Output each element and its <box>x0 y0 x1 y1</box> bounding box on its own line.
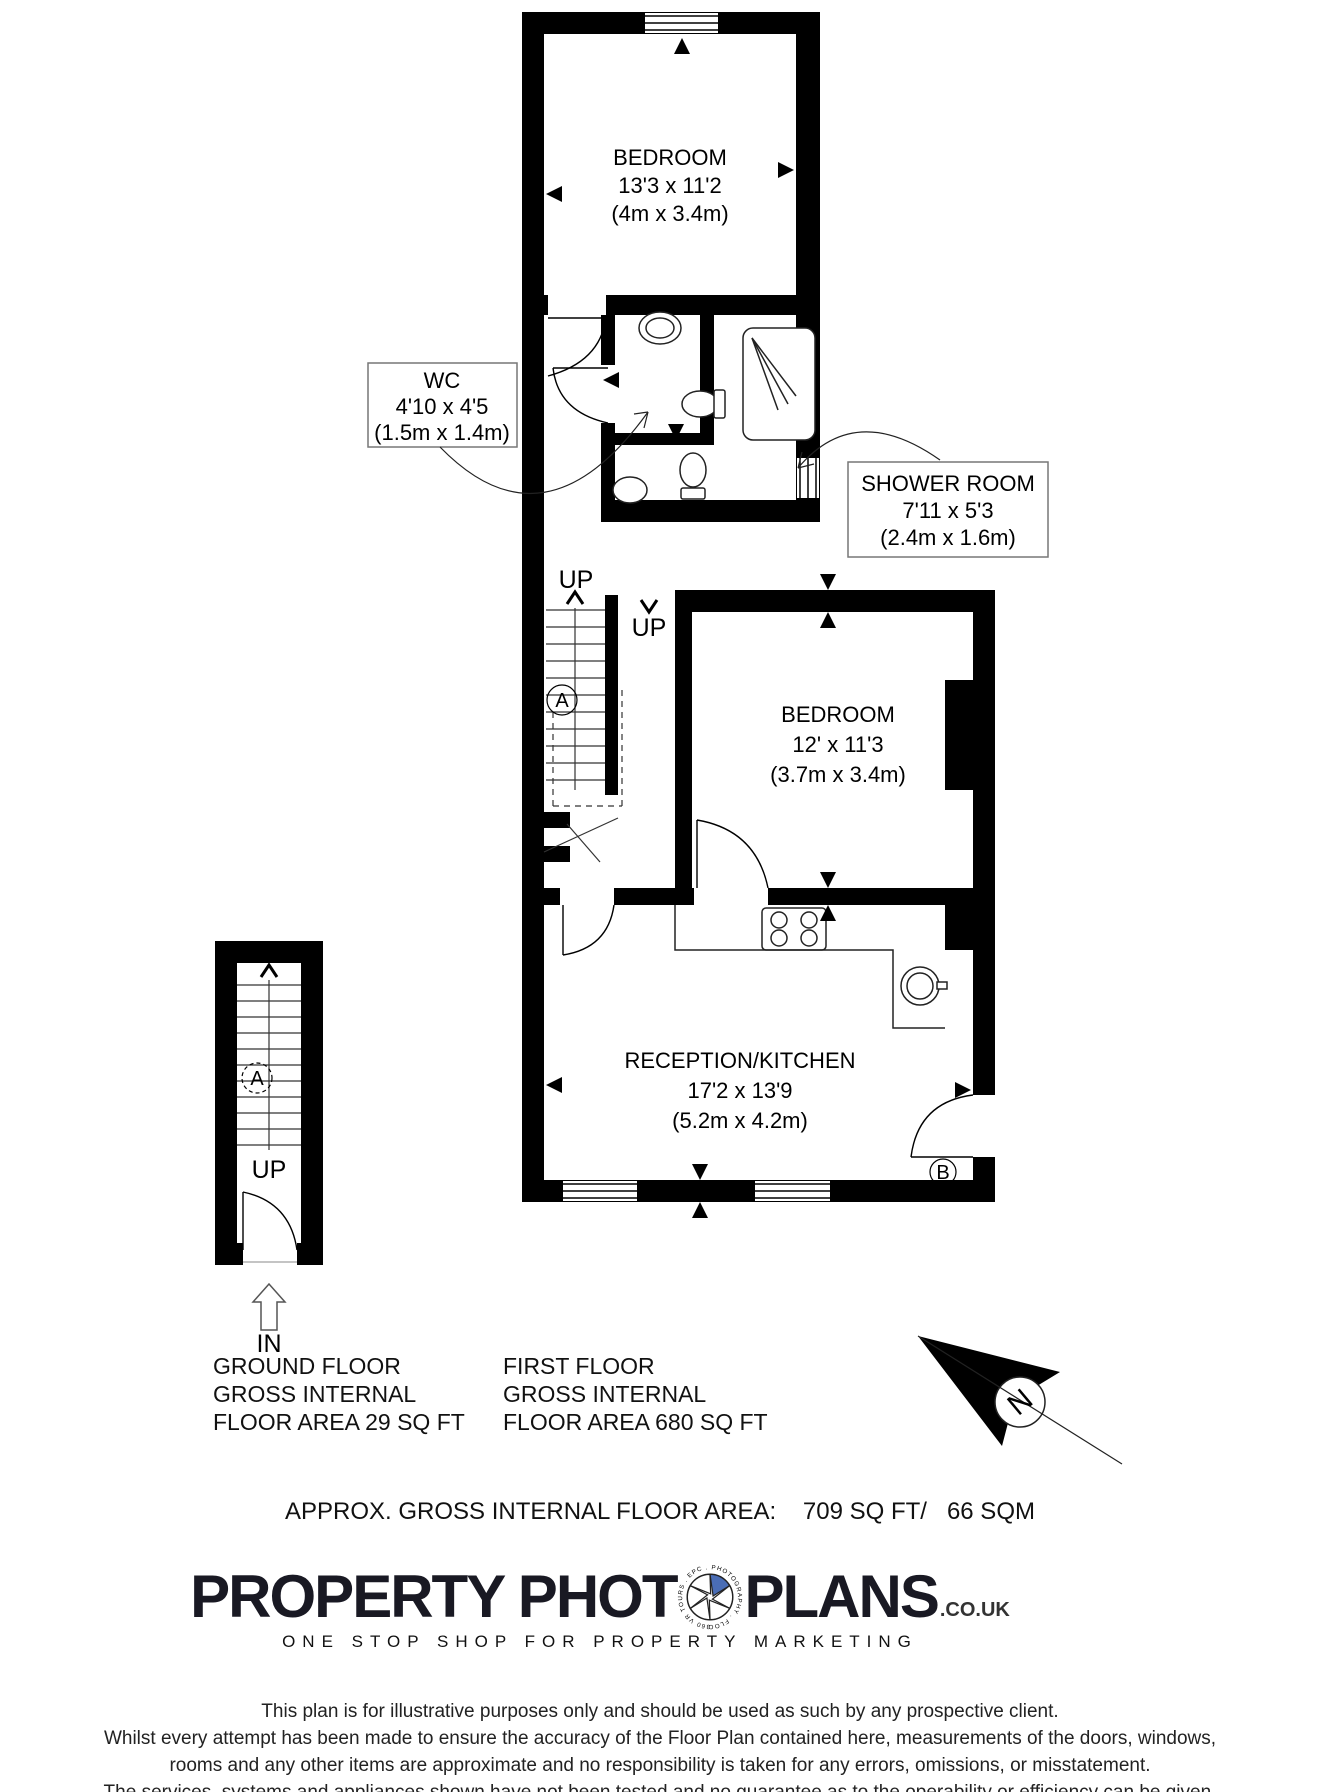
wall <box>675 590 995 612</box>
first-floor-caption: FIRST FLOOR GROSS INTERNAL FLOOR AREA 68… <box>503 1352 768 1436</box>
caption-line: FIRST FLOOR <box>503 1352 768 1380</box>
marker-icon <box>674 38 690 54</box>
first-floor-walls <box>522 12 995 1202</box>
kitchen-sink <box>901 967 947 1005</box>
wall <box>700 315 714 445</box>
marker-icon <box>778 162 794 178</box>
caption-line: GROSS INTERNAL <box>503 1380 768 1408</box>
marker-icon <box>546 1077 562 1093</box>
entrance-arrow-icon <box>253 1284 285 1330</box>
marker-icon <box>692 1164 708 1180</box>
disclaimer-line: This plan is for illustrative purposes o… <box>0 1698 1320 1725</box>
reception-name: RECEPTION/KITCHEN <box>624 1048 855 1073</box>
shower-room-basin <box>613 477 647 503</box>
bedroom2-metric: (3.7m x 3.4m) <box>770 762 906 787</box>
disclaimer-block: This plan is for illustrative purposes o… <box>0 1698 1320 1792</box>
ground-floor-stairs <box>237 965 301 1150</box>
ref-a-2: A <box>250 1068 264 1090</box>
bedroom2-name: BEDROOM <box>781 702 895 727</box>
ref-a-1: A <box>555 690 569 712</box>
bedroom1-metric: (4m x 3.4m) <box>611 201 728 226</box>
total-area-line: APPROX. GROSS INTERNAL FLOOR AREA: 709 S… <box>0 1498 1320 1526</box>
marker-icon <box>692 1202 708 1218</box>
up-arrow-icon <box>641 600 657 612</box>
bedroom2-size: 12' x 11'3 <box>792 732 883 757</box>
logo-suffix: .CO.UK <box>940 1599 1010 1622</box>
wall-stub <box>544 812 570 828</box>
wall <box>215 1243 243 1265</box>
reception-metric: (5.2m x 4.2m) <box>672 1108 808 1133</box>
bedroom1-size: 13'3 x 11'2 <box>618 173 721 198</box>
wall <box>522 12 544 1202</box>
chimney-breast <box>945 905 973 950</box>
brand-logo: PROPERTY PHOT 360 VR TOURS . EPC . PHOTO… <box>0 1562 1200 1631</box>
wall <box>215 941 237 1265</box>
closet-door-leaf <box>567 824 600 862</box>
floorplan-page: N BEDROOM 13'3 x 11'2 (4m x 3.4m) WC 4'1… <box>0 0 1320 1792</box>
ref-b: B <box>936 1162 949 1184</box>
up-label-ground: UP <box>252 1156 287 1184</box>
reception-size: 17'2 x 13'9 <box>687 1078 792 1103</box>
disclaimer-line: Whilst every attempt has been made to en… <box>0 1725 1320 1752</box>
wall <box>297 1243 323 1265</box>
door-wc <box>553 368 608 423</box>
shower-metric: (2.4m x 1.6m) <box>880 525 1016 550</box>
ground-floor-door <box>243 1192 297 1262</box>
wall-stub <box>544 846 570 862</box>
caption-line: GROUND FLOOR <box>213 1352 465 1380</box>
marker-icon <box>546 186 562 202</box>
caption-line: FLOOR AREA 29 SQ FT <box>213 1408 465 1436</box>
marker-icon <box>820 612 836 628</box>
caption-line: GROSS INTERNAL <box>213 1380 465 1408</box>
ground-floor-caption: GROUND FLOOR GROSS INTERNAL FLOOR AREA 2… <box>213 1352 465 1436</box>
stair-refs <box>242 685 956 1185</box>
disclaimer-line: The services, systems and appliances sho… <box>0 1779 1320 1792</box>
wc-basin <box>639 312 681 344</box>
plan-annotations: UP UP A UP A B IN <box>250 566 949 1358</box>
logo-text-right: PLANS <box>744 1562 937 1631</box>
up-label-1: UP <box>559 566 594 594</box>
wc-name: WC <box>424 368 461 393</box>
kitchen-hob <box>762 908 826 950</box>
wc-metric: (1.5m x 1.4m) <box>374 420 510 445</box>
shower-name: SHOWER ROOM <box>861 471 1035 496</box>
door-hall-reception <box>563 905 614 955</box>
door-bedroom2 <box>697 820 768 888</box>
shower-cubicle <box>743 328 815 440</box>
wc-size: 4'10 x 4'5 <box>396 394 489 419</box>
fixtures <box>613 312 947 1028</box>
marker-icon <box>820 574 836 590</box>
wall <box>301 941 323 1265</box>
door-b <box>911 1095 973 1157</box>
chimney-breast <box>945 680 973 790</box>
bedroom1-name: BEDROOM <box>613 145 727 170</box>
shower-size: 7'11 x 5'3 <box>902 498 993 523</box>
caption-line: FLOOR AREA 680 SQ FT <box>503 1408 768 1436</box>
brand-tagline: ONE STOP SHOP FOR PROPERTY MARKETING <box>0 1632 1200 1652</box>
wc-toilet <box>682 390 725 418</box>
up-label-2: UP <box>632 614 667 642</box>
marker-icon <box>820 872 836 888</box>
wall <box>675 590 692 905</box>
disclaimer-line: rooms and any other items are approximat… <box>0 1752 1320 1779</box>
north-compass: N <box>918 1336 1122 1464</box>
shower-room-toilet <box>680 453 706 499</box>
camera-shutter-icon: 360 VR TOURS . EPC . PHOTOGRAPHY . FLOOR… <box>677 1564 743 1630</box>
stair-wall <box>605 595 618 795</box>
logo-text-left: PROPERTY PHOT <box>190 1562 676 1631</box>
